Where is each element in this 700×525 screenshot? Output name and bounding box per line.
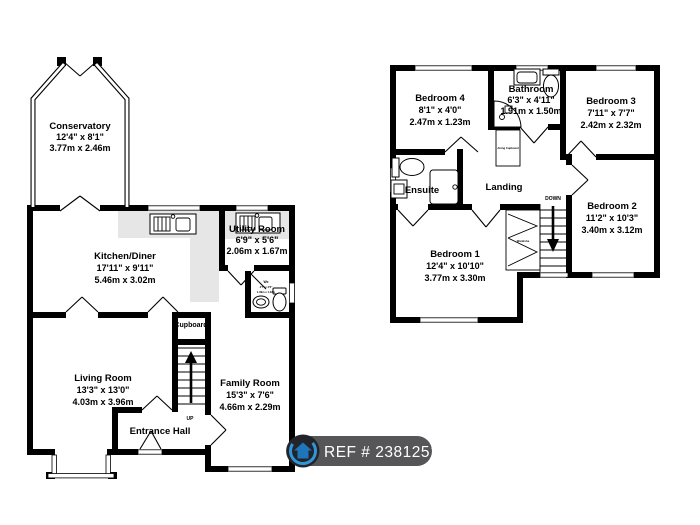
utility-size-ft: 6'9" x 5'6" bbox=[236, 235, 279, 245]
ground-floor-plan: Conservatory 12'4" x 8'1" 3.77m x 2.46m … bbox=[27, 57, 295, 479]
bedroom2-size-ft: 11'2" x 10'3" bbox=[586, 213, 638, 223]
bedroom4-label: Bedroom 4 bbox=[415, 93, 465, 104]
first-floor-plan: Airing Cupboard Wardrobe Bedroom 4 8'1" … bbox=[390, 65, 660, 323]
ensuite-fixtures-icon bbox=[391, 158, 458, 204]
cupboard-label: Cupboard bbox=[174, 322, 207, 329]
family-room-label: Family Room bbox=[220, 378, 280, 389]
living-room-size-m: 4.03m x 3.96m bbox=[72, 397, 133, 407]
conservatory-size-m: 3.77m x 2.46m bbox=[49, 143, 110, 153]
bedroom4-size-m: 2.47m x 1.23m bbox=[409, 117, 470, 127]
bathroom-size-ft: 6'3" x 4'11" bbox=[507, 95, 554, 105]
up-arrow-icon bbox=[185, 351, 197, 403]
utility-label: Utility Room bbox=[229, 224, 285, 235]
wc-label: Wc bbox=[263, 280, 268, 284]
wardrobe-label: Wardrobe bbox=[517, 239, 530, 243]
floorplan-canvas: Conservatory 12'4" x 8'1" 3.77m x 2.46m … bbox=[0, 0, 700, 525]
wc-size-m: 1.39m x 1.22m bbox=[257, 290, 276, 294]
ensuite-label: Ensuite bbox=[405, 185, 439, 196]
bedroom2-label: Bedroom 2 bbox=[587, 201, 637, 212]
bedroom3-size-ft: 7'11" x 7'7" bbox=[587, 108, 634, 118]
landing-label: Landing bbox=[486, 182, 523, 193]
living-room-size-ft: 13'3" x 13'0" bbox=[77, 385, 130, 395]
conservatory-label: Conservatory bbox=[49, 121, 111, 132]
bedroom1-size-ft: 12'4" x 10'10" bbox=[426, 261, 484, 271]
bedroom3-label: Bedroom 3 bbox=[586, 96, 636, 107]
family-room-size-ft: 15'3" x 7'6" bbox=[226, 390, 274, 400]
airing-cupboard: Airing Cupboard bbox=[496, 130, 520, 166]
wc-size-ft: 4'7" x 4'0" bbox=[260, 285, 274, 289]
bedroom3-size-m: 2.42m x 2.32m bbox=[580, 120, 641, 130]
stairs-up bbox=[178, 348, 205, 404]
up-label: UP bbox=[187, 416, 195, 422]
ref-badge: REF # 2381251 bbox=[285, 433, 439, 468]
bathroom-label: Bathroom bbox=[509, 84, 554, 95]
bedroom1-label: Bedroom 1 bbox=[430, 249, 480, 260]
floorplan-image: Conservatory 12'4" x 8'1" 3.77m x 2.46m … bbox=[0, 0, 700, 525]
down-arrow-icon bbox=[547, 206, 559, 252]
kitchen-size-ft: 17'11" x 9'11" bbox=[97, 263, 154, 273]
family-room-size-m: 4.66m x 2.29m bbox=[219, 402, 280, 412]
down-label: DOWN bbox=[545, 196, 561, 202]
wardrobe: Wardrobe bbox=[506, 210, 540, 270]
utility-size-m: 2.06m x 1.67m bbox=[226, 246, 287, 256]
kitchen-size-m: 5.46m x 3.02m bbox=[94, 275, 155, 285]
stairs-down bbox=[540, 204, 566, 272]
bedroom2-size-m: 3.40m x 3.12m bbox=[581, 225, 642, 235]
entrance-hall-label: Entrance Hall bbox=[130, 426, 191, 437]
kitchen-label: Kitchen/Diner bbox=[94, 251, 156, 262]
bathroom-size-m: 1.91m x 1.50m bbox=[500, 106, 561, 116]
airing-cupboard-label: Airing Cupboard bbox=[497, 146, 519, 150]
conservatory-size-ft: 12'4" x 8'1" bbox=[56, 132, 104, 142]
kitchen-sink-icon bbox=[150, 214, 196, 234]
bedroom4-size-ft: 8'1" x 4'0" bbox=[419, 105, 462, 115]
ref-number: REF # 2381251 bbox=[324, 444, 439, 461]
bedroom1-size-m: 3.77m x 3.30m bbox=[424, 273, 485, 283]
living-room-label: Living Room bbox=[74, 373, 132, 384]
